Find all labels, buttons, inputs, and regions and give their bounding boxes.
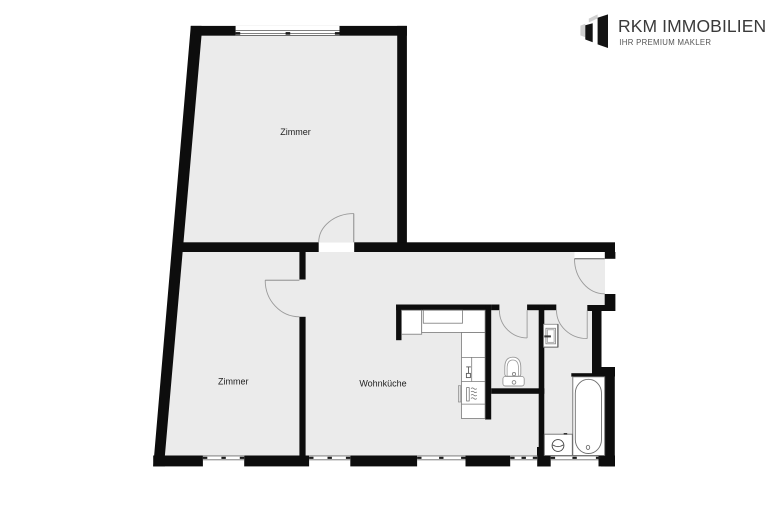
- svg-text:Wohnküche: Wohnküche: [359, 379, 406, 389]
- svg-text:Zimmer: Zimmer: [218, 377, 249, 387]
- svg-text:RKM IMMOBILIEN: RKM IMMOBILIEN: [618, 16, 766, 36]
- svg-text:IHR PREMIUM MAKLER: IHR PREMIUM MAKLER: [619, 38, 711, 47]
- svg-text:Zimmer: Zimmer: [280, 127, 311, 137]
